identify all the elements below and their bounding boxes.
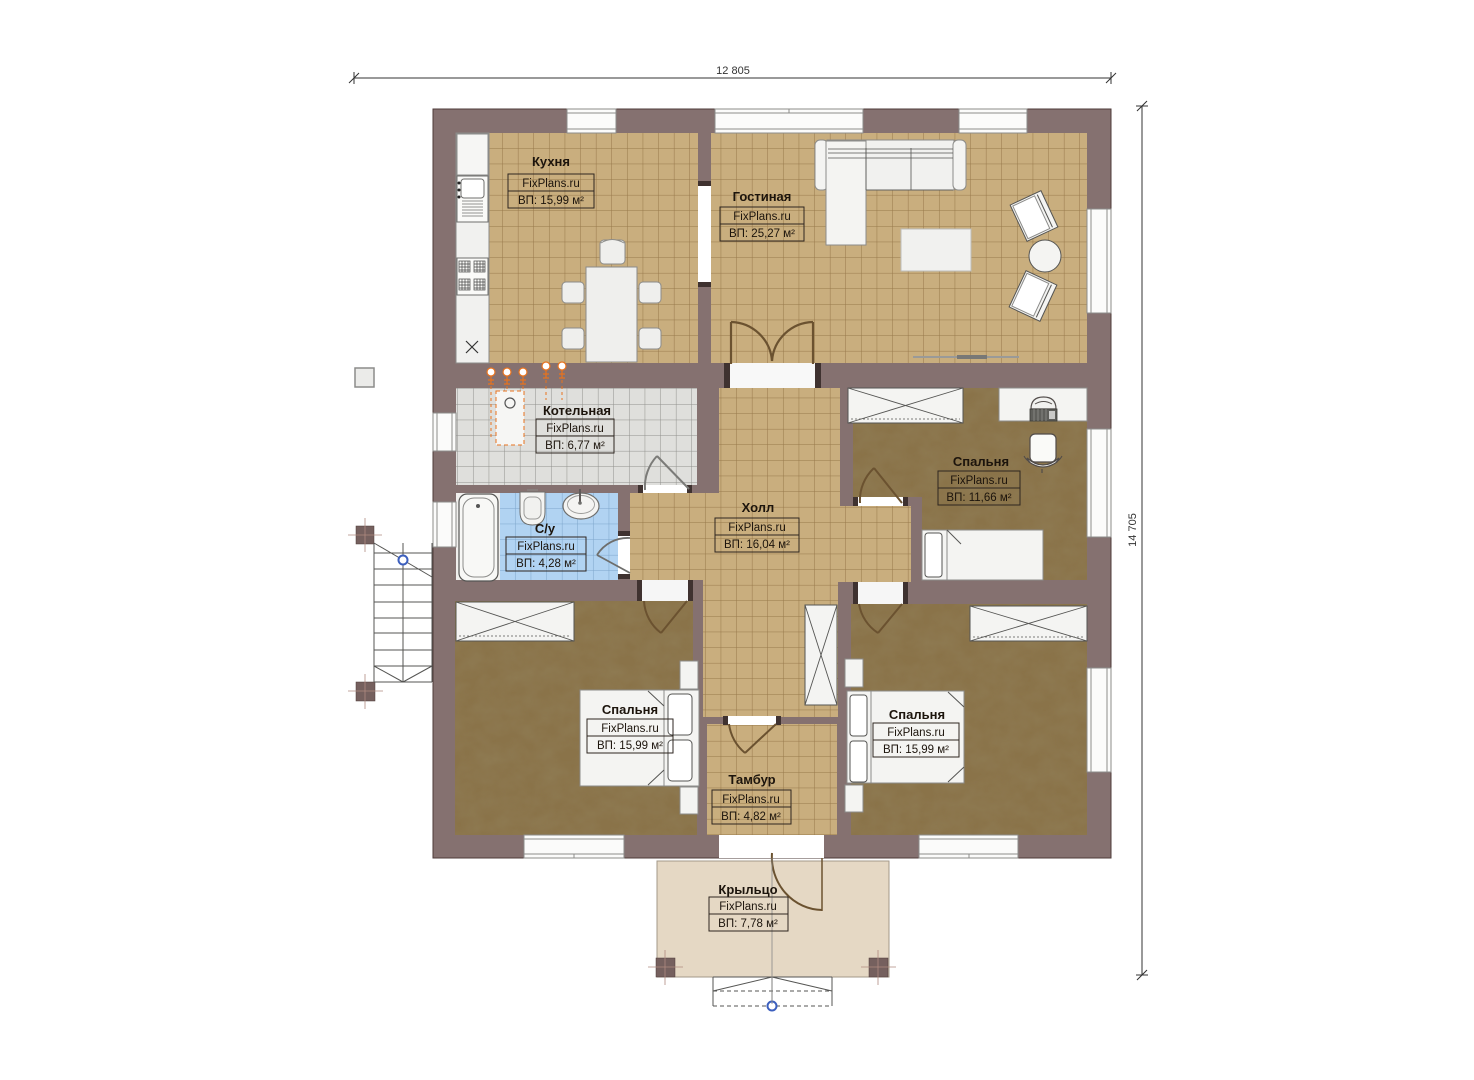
svg-text:ВП: 11,66 м²: ВП: 11,66 м² (946, 492, 1011, 504)
svg-text:FixPlans.ru: FixPlans.ru (522, 178, 580, 190)
svg-text:FixPlans.ru: FixPlans.ru (722, 794, 780, 806)
svg-text:FixPlans.ru: FixPlans.ru (950, 475, 1008, 487)
svg-text:FixPlans.ru: FixPlans.ru (887, 727, 945, 739)
svg-text:ВП: 15,99 м²: ВП: 15,99 м² (883, 744, 949, 756)
svg-text:Котельная: Котельная (543, 403, 611, 418)
svg-text:Гостиная: Гостиная (733, 189, 792, 204)
svg-text:ВП: 15,99 м²: ВП: 15,99 м² (518, 195, 584, 207)
svg-text:ВП: 6,77 м²: ВП: 6,77 м² (545, 440, 605, 452)
svg-text:FixPlans.ru: FixPlans.ru (546, 423, 604, 435)
svg-text:ВП: 4,28 м²: ВП: 4,28 м² (516, 558, 576, 570)
svg-text:ВП: 16,04 м²: ВП: 16,04 м² (724, 539, 790, 551)
svg-text:FixPlans.ru: FixPlans.ru (728, 522, 786, 534)
svg-text:С/у: С/у (535, 521, 556, 536)
svg-text:Тамбур: Тамбур (728, 772, 775, 787)
svg-text:ВП: 4,82 м²: ВП: 4,82 м² (721, 811, 781, 823)
svg-text:Спальня: Спальня (953, 454, 1009, 469)
svg-text:Спальня: Спальня (602, 702, 658, 717)
svg-text:Кухня: Кухня (532, 154, 570, 169)
svg-text:Спальня: Спальня (889, 707, 945, 722)
svg-text:Холл: Холл (742, 500, 775, 515)
svg-text:14 705: 14 705 (1127, 513, 1139, 547)
svg-text:FixPlans.ru: FixPlans.ru (719, 901, 777, 913)
svg-text:FixPlans.ru: FixPlans.ru (733, 211, 791, 223)
svg-text:FixPlans.ru: FixPlans.ru (601, 723, 659, 735)
svg-text:ВП: 15,99 м²: ВП: 15,99 м² (597, 740, 663, 752)
svg-text:ВП: 7,78 м²: ВП: 7,78 м² (718, 918, 778, 930)
svg-text:FixPlans.ru: FixPlans.ru (517, 541, 575, 553)
svg-text:ВП: 25,27 м²: ВП: 25,27 м² (729, 228, 795, 240)
svg-text:Крыльцо: Крыльцо (718, 882, 777, 897)
svg-text:12 805: 12 805 (716, 65, 750, 77)
